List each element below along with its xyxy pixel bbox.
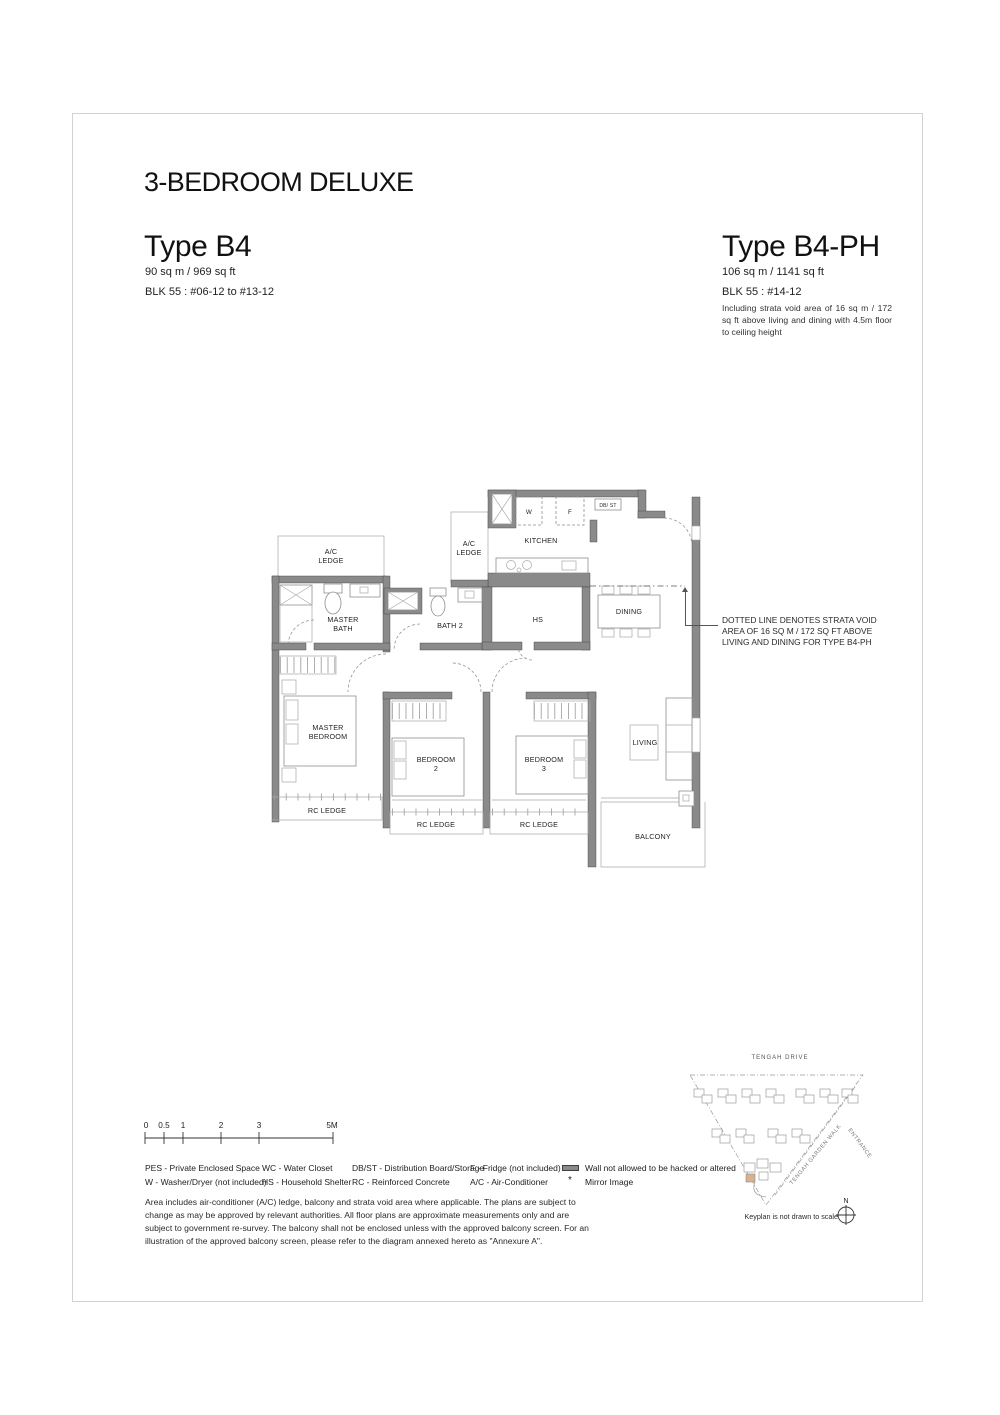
- unit-b4-name: Type B4: [144, 230, 251, 264]
- legend-washer: W - Washer/Dryer (not included): [145, 1177, 267, 1187]
- disclaimer-text: Area includes air-conditioner (A/C) ledg…: [145, 1196, 597, 1248]
- room-label-living: LIVING: [633, 738, 658, 747]
- unit-b4ph-name: Type B4-PH: [722, 230, 880, 264]
- leader-line: [685, 625, 718, 626]
- legend-dbst: DB/ST - Distribution Board/Storage: [352, 1163, 484, 1173]
- mirror-symbol: *: [568, 1175, 572, 1186]
- unit-b4ph-area: 106 sq m / 1141 sq ft: [722, 266, 824, 278]
- scale-tick-label: 3: [257, 1121, 262, 1130]
- room-label-dining: DINING: [616, 607, 643, 616]
- legend-hs: HS - Household Shelter: [262, 1177, 351, 1187]
- svg-text:LEDGE: LEDGE: [456, 548, 481, 557]
- label-rc-ledge: RC LEDGE: [520, 820, 558, 829]
- appliance-label-fridge: F: [568, 509, 572, 516]
- scale-tick-label: 1: [181, 1121, 186, 1130]
- wall-legend-swatch: [562, 1165, 579, 1171]
- road-label-entrance: ENTRANCE: [846, 1128, 872, 1160]
- room-label-kitchen: KITCHEN: [525, 536, 558, 545]
- sofa: [666, 698, 692, 780]
- scale-tick-label: 2: [219, 1121, 224, 1130]
- keyplan-highlighted-unit: [746, 1174, 755, 1182]
- bed-2: [392, 738, 464, 796]
- room-label-ac-ledge: A/C: [463, 539, 476, 548]
- bed-3: [516, 736, 588, 794]
- label-rc-ledge: RC LEDGE: [417, 820, 455, 829]
- north-compass: N: [836, 1198, 856, 1225]
- floor-plan: A/C LEDGE A/C LEDGE KITCHEN W F DB/ ST M…: [268, 470, 718, 880]
- balcony-area: [601, 791, 705, 867]
- scale-tick-label: 0: [144, 1121, 149, 1130]
- room-label-bath2: BATH 2: [437, 621, 463, 630]
- bathroom-fixtures: [280, 584, 482, 642]
- unit-b4ph-block: BLK 55 : #14-12: [722, 286, 802, 298]
- unit-b4-area: 90 sq m / 969 sq ft: [145, 266, 236, 278]
- svg-text:LEDGE: LEDGE: [318, 556, 343, 565]
- svg-text:BEDROOM: BEDROOM: [309, 732, 348, 741]
- svg-text:2: 2: [434, 764, 438, 773]
- legend-wc: WC - Water Closet: [262, 1163, 333, 1173]
- svg-text:3: 3: [542, 764, 546, 773]
- label-rc-ledge: RC LEDGE: [308, 806, 346, 815]
- room-label-hs: HS: [533, 615, 543, 624]
- leader-line: [685, 592, 686, 625]
- room-label-master-bedroom: MASTER: [312, 723, 343, 732]
- unit-b4-block: BLK 55 : #06-12 to #13-12: [145, 286, 274, 298]
- scale-tick-label: 5M: [326, 1121, 338, 1130]
- legend-pes: PES - Private Enclosed Space: [145, 1163, 260, 1173]
- appliance-label-washer: W: [526, 509, 532, 516]
- scale-bar: 0 0.5 1 2 3 5M: [143, 1118, 343, 1150]
- keyplan-caption: Keyplan is not drawn to scale: [745, 1212, 839, 1221]
- unit-b4ph-note: Including strata void area of 16 sq m / …: [722, 303, 892, 339]
- toilet: [431, 596, 445, 616]
- strata-void-note: DOTTED LINE DENOTES STRATA VOID AREA OF …: [722, 615, 877, 648]
- toilet: [325, 592, 341, 614]
- room-label-balcony: BALCONY: [635, 832, 671, 841]
- page-title: 3-BEDROOM DELUXE: [144, 167, 413, 198]
- legend-mirror-note: Mirror Image: [585, 1177, 633, 1187]
- north-label: N: [843, 1198, 848, 1205]
- keyplan-blocks: [694, 1089, 858, 1197]
- legend-fridge: F - Fridge (not included): [470, 1163, 561, 1173]
- floorplan-sheet: 3-BEDROOM DELUXE Type B4 90 sq m / 969 s…: [0, 0, 1000, 1415]
- room-label-bedroom2: BEDROOM: [417, 755, 456, 764]
- room-label-bedroom3: BEDROOM: [525, 755, 564, 764]
- legend-rc: RC - Reinforced Concrete: [352, 1177, 450, 1187]
- room-label-ac-ledge: A/C: [325, 547, 338, 556]
- road-label-tengah-drive: TENGAH DRIVE: [751, 1055, 808, 1061]
- svg-text:BATH: BATH: [333, 624, 352, 633]
- room-label-master-bath: MASTER: [327, 615, 358, 624]
- label-dbst: DB/ ST: [599, 503, 616, 509]
- keyplan: TENGAH DRIVE ENTRANCE TENGAH GARDEN WALK: [680, 1045, 905, 1235]
- scale-tick-label: 0.5: [158, 1121, 170, 1130]
- legend-ac: A/C - Air-Conditioner: [470, 1177, 548, 1187]
